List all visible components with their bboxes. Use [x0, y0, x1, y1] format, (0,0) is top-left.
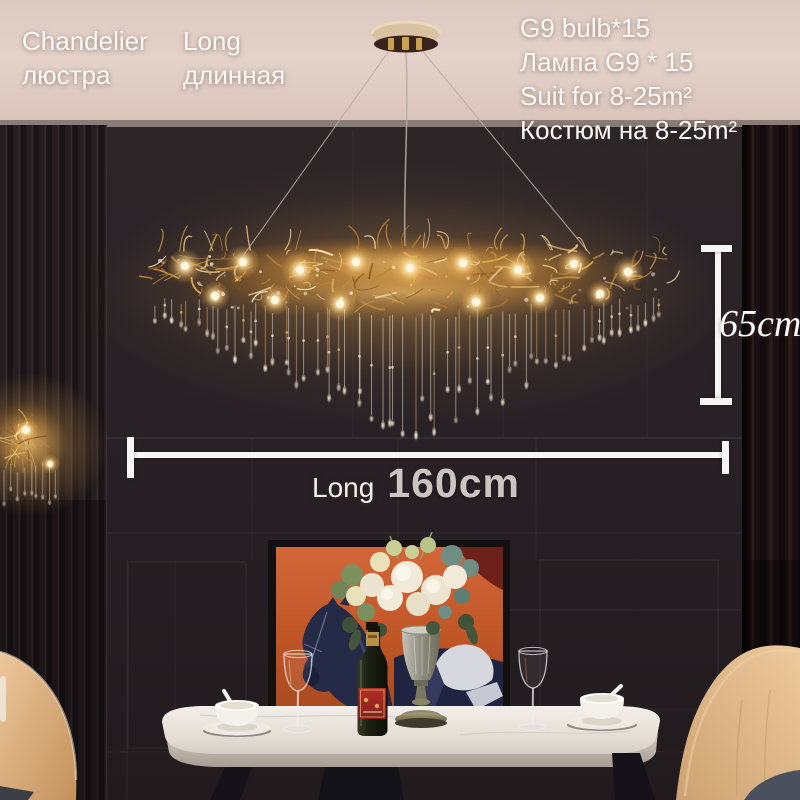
- height-dimension-cap-bottom: [700, 398, 732, 405]
- length-dimension-label: Long 160cm: [312, 460, 520, 507]
- ceiling-canopy: [372, 22, 440, 53]
- spec-line-bulbs-en: G9 bulb*15: [520, 11, 737, 45]
- height-dimension-cap-top: [701, 245, 732, 252]
- length-label-value: 160cm: [387, 460, 520, 507]
- spec-line-bulbs-ru: Лампа G9 * 15: [520, 45, 737, 79]
- bottle-label: [359, 688, 387, 719]
- spec-line-area-en: Suit for 8-25m²: [520, 79, 737, 113]
- height-dimension-label: 65cm: [719, 302, 800, 346]
- length-dimension-cap-right: [722, 441, 729, 474]
- variant-label: Long длинная: [183, 24, 285, 92]
- length-label-word: Long: [312, 472, 374, 504]
- product-photo: Chandelier люстра Long длинная G9 bulb*1…: [0, 0, 800, 800]
- product-name-ru: люстра: [22, 58, 148, 92]
- product-name-en: Chandelier: [22, 24, 148, 58]
- product-name-label: Chandelier люстра: [22, 24, 148, 92]
- length-dimension-line: [129, 452, 727, 458]
- variant-en: Long: [183, 24, 285, 58]
- spec-line-area-ru: Костюм на 8-25m²: [520, 113, 737, 147]
- length-dimension-cap-left: [127, 437, 134, 478]
- spec-list: G9 bulb*15 Лампа G9 * 15 Suit for 8-25m²…: [520, 11, 737, 147]
- variant-ru: длинная: [183, 58, 285, 92]
